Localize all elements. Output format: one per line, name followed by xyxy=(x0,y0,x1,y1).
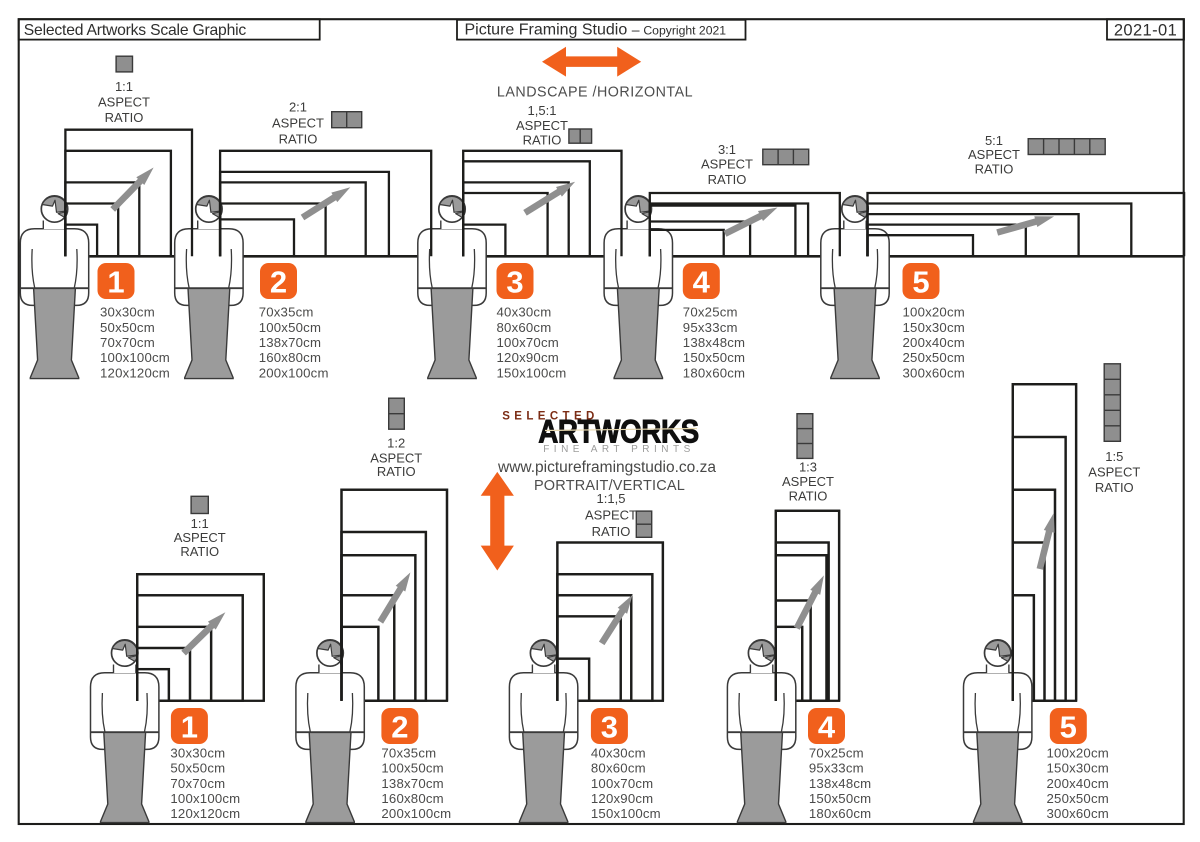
svg-text:5: 5 xyxy=(912,265,929,300)
svg-text:150x100cm: 150x100cm xyxy=(591,806,661,821)
svg-text:150x30cm: 150x30cm xyxy=(1047,761,1109,776)
svg-text:250x50cm: 250x50cm xyxy=(1047,791,1109,806)
svg-text:70x70cm: 70x70cm xyxy=(170,776,225,791)
svg-text:180x60cm: 180x60cm xyxy=(809,806,871,821)
svg-text:1: 1 xyxy=(107,265,124,300)
svg-text:4: 4 xyxy=(818,710,836,745)
svg-text:4: 4 xyxy=(693,265,711,300)
svg-text:70x25cm: 70x25cm xyxy=(683,305,738,320)
svg-text:70x70cm: 70x70cm xyxy=(100,335,155,350)
svg-text:30x30cm: 30x30cm xyxy=(170,745,225,760)
svg-text:120x120cm: 120x120cm xyxy=(170,806,240,821)
svg-text:100x20cm: 100x20cm xyxy=(903,305,965,320)
svg-text:1:1,5: 1:1,5 xyxy=(597,491,626,506)
svg-text:5: 5 xyxy=(1060,710,1077,745)
svg-text:2: 2 xyxy=(391,710,408,745)
svg-text:RATIO: RATIO xyxy=(279,131,318,146)
svg-text:www.pictureframingstudio.co.za: www.pictureframingstudio.co.za xyxy=(497,459,716,476)
svg-text:ASPECT: ASPECT xyxy=(98,95,150,110)
svg-text:50x50cm: 50x50cm xyxy=(100,320,155,335)
svg-text:138x48cm: 138x48cm xyxy=(809,776,871,791)
svg-text:100x70cm: 100x70cm xyxy=(497,335,559,350)
svg-text:100x50cm: 100x50cm xyxy=(381,761,443,776)
svg-text:1,5:1: 1,5:1 xyxy=(528,103,557,118)
svg-text:300x60cm: 300x60cm xyxy=(903,365,965,380)
svg-text:80x60cm: 80x60cm xyxy=(497,320,552,335)
svg-text:150x30cm: 150x30cm xyxy=(903,320,965,335)
svg-text:80x60cm: 80x60cm xyxy=(591,761,646,776)
svg-text:250x50cm: 250x50cm xyxy=(903,350,965,365)
svg-text:RATIO: RATIO xyxy=(180,544,219,559)
svg-text:1:1: 1:1 xyxy=(115,79,133,94)
svg-text:1:1: 1:1 xyxy=(191,516,209,531)
svg-text:LANDSCAPE /HORIZONTAL: LANDSCAPE /HORIZONTAL xyxy=(497,85,693,101)
svg-text:95x33cm: 95x33cm xyxy=(683,320,738,335)
svg-text:150x100cm: 150x100cm xyxy=(497,365,567,380)
svg-text:ASPECT: ASPECT xyxy=(272,115,324,130)
svg-text:2:1: 2:1 xyxy=(289,99,307,114)
svg-text:RATIO: RATIO xyxy=(377,464,416,479)
svg-text:138x70cm: 138x70cm xyxy=(381,776,443,791)
svg-text:40x30cm: 40x30cm xyxy=(591,745,646,760)
svg-text:5:1: 5:1 xyxy=(985,133,1003,148)
svg-text:100x70cm: 100x70cm xyxy=(591,776,653,791)
svg-text:160x80cm: 160x80cm xyxy=(259,350,321,365)
svg-text:138x70cm: 138x70cm xyxy=(259,335,321,350)
svg-text:Picture Framing Studio – Copyr: Picture Framing Studio – Copyright 2021 xyxy=(465,22,727,39)
svg-text:300x60cm: 300x60cm xyxy=(1047,806,1109,821)
svg-text:70x25cm: 70x25cm xyxy=(809,745,864,760)
svg-text:150x50cm: 150x50cm xyxy=(683,350,745,365)
svg-text:200x40cm: 200x40cm xyxy=(1047,776,1109,791)
svg-text:2021-01: 2021-01 xyxy=(1114,21,1177,39)
svg-text:Selected Artworks Scale Graphi: Selected Artworks Scale Graphic xyxy=(24,22,247,39)
svg-text:ASPECT: ASPECT xyxy=(174,530,226,545)
svg-text:RATIO: RATIO xyxy=(592,524,631,539)
svg-text:180x60cm: 180x60cm xyxy=(683,365,745,380)
svg-text:138x48cm: 138x48cm xyxy=(683,335,745,350)
svg-text:RATIO: RATIO xyxy=(975,162,1014,177)
svg-text:50x50cm: 50x50cm xyxy=(170,761,225,776)
svg-text:ASPECT: ASPECT xyxy=(701,157,753,172)
svg-text:3:1: 3:1 xyxy=(718,142,736,157)
svg-text:70x35cm: 70x35cm xyxy=(259,305,314,320)
svg-text:70x35cm: 70x35cm xyxy=(381,745,436,760)
svg-text:120x90cm: 120x90cm xyxy=(591,791,653,806)
svg-text:1: 1 xyxy=(181,710,198,745)
svg-text:ASPECT: ASPECT xyxy=(516,118,568,133)
svg-text:ASPECT: ASPECT xyxy=(370,450,422,465)
svg-text:160x80cm: 160x80cm xyxy=(381,791,443,806)
svg-text:RATIO: RATIO xyxy=(789,488,828,503)
svg-text:RATIO: RATIO xyxy=(523,133,562,148)
svg-text:RATIO: RATIO xyxy=(105,110,144,125)
svg-text:3: 3 xyxy=(601,710,618,745)
svg-text:120x90cm: 120x90cm xyxy=(497,350,559,365)
svg-text:2: 2 xyxy=(270,265,287,300)
svg-text:1:5: 1:5 xyxy=(1105,449,1123,464)
svg-text:200x40cm: 200x40cm xyxy=(903,335,965,350)
svg-text:95x33cm: 95x33cm xyxy=(809,761,864,776)
svg-text:FINE ART PRINTS: FINE ART PRINTS xyxy=(543,444,695,455)
svg-text:150x50cm: 150x50cm xyxy=(809,791,871,806)
svg-text:100x20cm: 100x20cm xyxy=(1047,745,1109,760)
svg-text:100x50cm: 100x50cm xyxy=(259,320,321,335)
svg-text:30x30cm: 30x30cm xyxy=(100,305,155,320)
svg-text:ASPECT: ASPECT xyxy=(782,474,834,489)
svg-text:100x100cm: 100x100cm xyxy=(100,350,170,365)
svg-text:120x120cm: 120x120cm xyxy=(100,365,170,380)
svg-text:RATIO: RATIO xyxy=(1095,480,1134,495)
svg-text:40x30cm: 40x30cm xyxy=(497,305,552,320)
svg-text:200x100cm: 200x100cm xyxy=(381,806,451,821)
svg-text:100x100cm: 100x100cm xyxy=(170,791,240,806)
svg-text:1:3: 1:3 xyxy=(799,460,817,475)
svg-text:3: 3 xyxy=(506,265,523,300)
svg-text:1:2: 1:2 xyxy=(387,435,405,450)
svg-text:ASPECT: ASPECT xyxy=(585,507,637,522)
svg-text:200x100cm: 200x100cm xyxy=(259,365,329,380)
svg-text:ASPECT: ASPECT xyxy=(1088,465,1140,480)
svg-text:RATIO: RATIO xyxy=(708,172,747,187)
svg-text:ASPECT: ASPECT xyxy=(968,147,1020,162)
